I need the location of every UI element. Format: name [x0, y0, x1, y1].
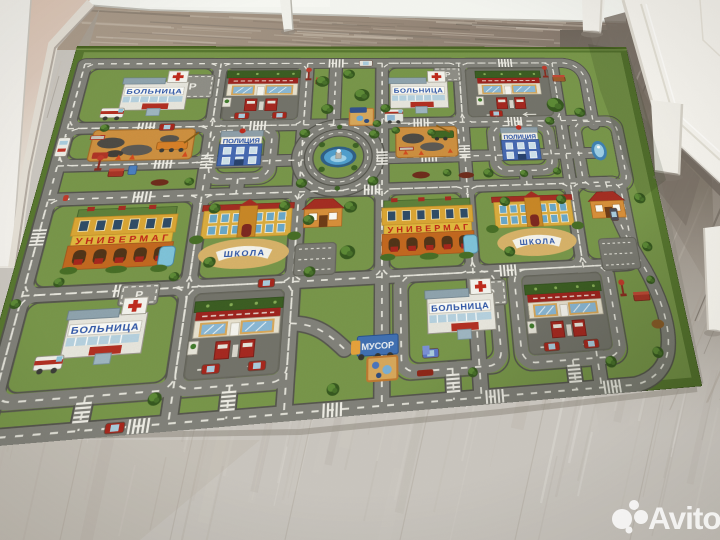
- svg-text:Avito: Avito: [648, 500, 720, 536]
